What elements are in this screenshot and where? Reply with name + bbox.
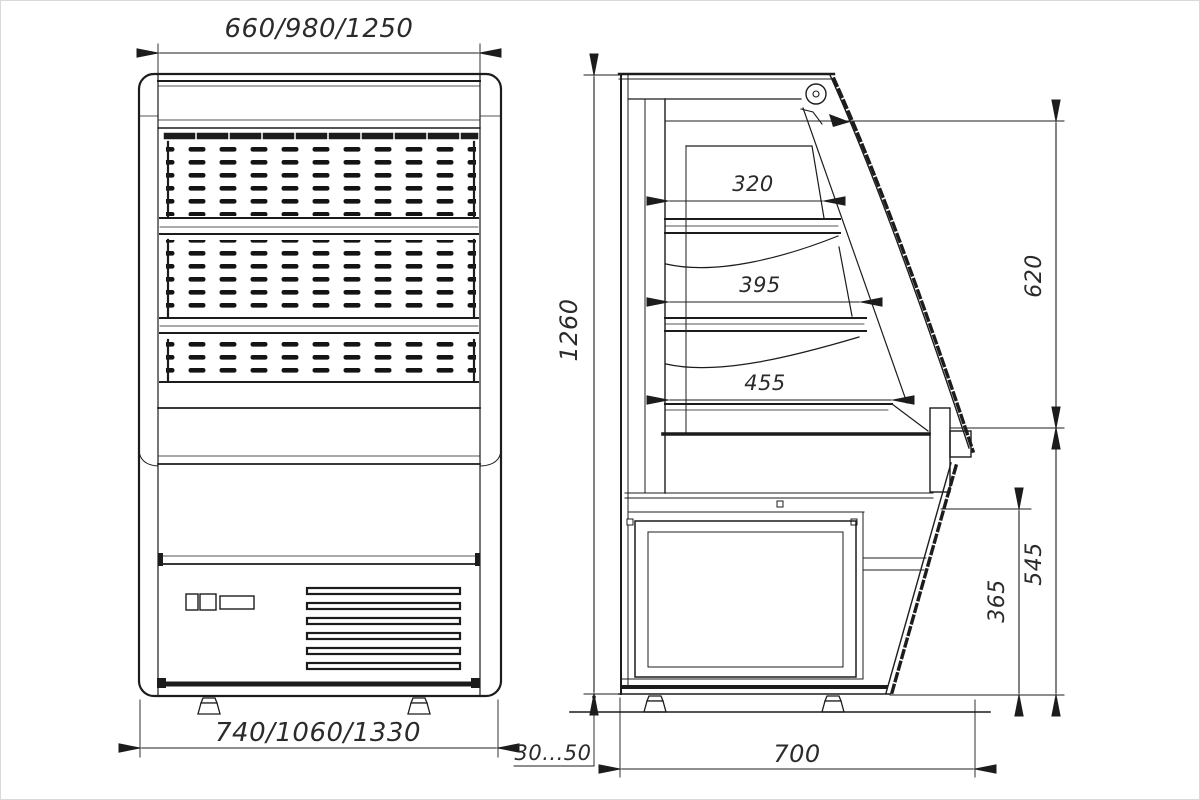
dim-shelf-top-depth: 320 — [670, 172, 822, 201]
dim-overall-width-top: 660/980/1250 — [158, 14, 480, 78]
lower-front-structure — [158, 408, 480, 566]
dim-overall-height: 1260 — [555, 75, 622, 694]
dim-shelf-bottom-depth: 455 — [670, 371, 891, 400]
overall-width-bottom-label: 740/1060/1330 — [215, 718, 421, 748]
back-panel — [619, 74, 834, 694]
drawing-page: 660/980/1250 740/1060/1330 1260 30...50 … — [0, 0, 1200, 800]
leg-range-label: 30...50 — [515, 741, 592, 765]
side-base — [570, 679, 990, 712]
ventilation-grille — [307, 588, 460, 669]
dim-body-depth: 700 — [620, 698, 975, 777]
front-feet — [198, 698, 430, 714]
machine-compartment-height-label: 365 — [985, 579, 1010, 623]
shelf-middle-depth-label: 395 — [739, 273, 781, 297]
side-shelves — [665, 146, 928, 431]
overall-height-label: 1260 — [555, 298, 583, 361]
dim-machine-compartment-height: 365 — [941, 509, 1031, 693]
dim-overall-width-bottom: 740/1060/1330 — [140, 700, 498, 757]
lower-section-height-label: 545 — [1022, 542, 1047, 586]
machine-compartment — [625, 434, 933, 679]
front-glass — [803, 75, 973, 451]
body-depth-label: 700 — [773, 740, 820, 768]
control-panel — [186, 594, 254, 610]
dim-leg-range: 30...50 — [514, 694, 596, 766]
refrigerated-display-case-drawing: 660/980/1250 740/1060/1330 1260 30...50 … — [0, 0, 1200, 800]
dim-lower-section-height: 545 — [890, 430, 1064, 695]
overall-width-top-label: 660/980/1250 — [225, 14, 414, 44]
night-blind-roller — [801, 84, 826, 124]
base-trim — [157, 678, 480, 688]
perforated-back-panels — [166, 142, 476, 380]
shelf-top-depth-label: 320 — [732, 172, 774, 196]
dim-opening-height: 620 — [666, 114, 1064, 428]
shelf-bottom-depth-label: 455 — [744, 371, 786, 395]
dim-shelf-middle-depth: 395 — [670, 273, 859, 302]
front-view — [139, 74, 501, 714]
canopy — [158, 120, 480, 136]
opening-height-label: 620 — [1022, 254, 1047, 298]
